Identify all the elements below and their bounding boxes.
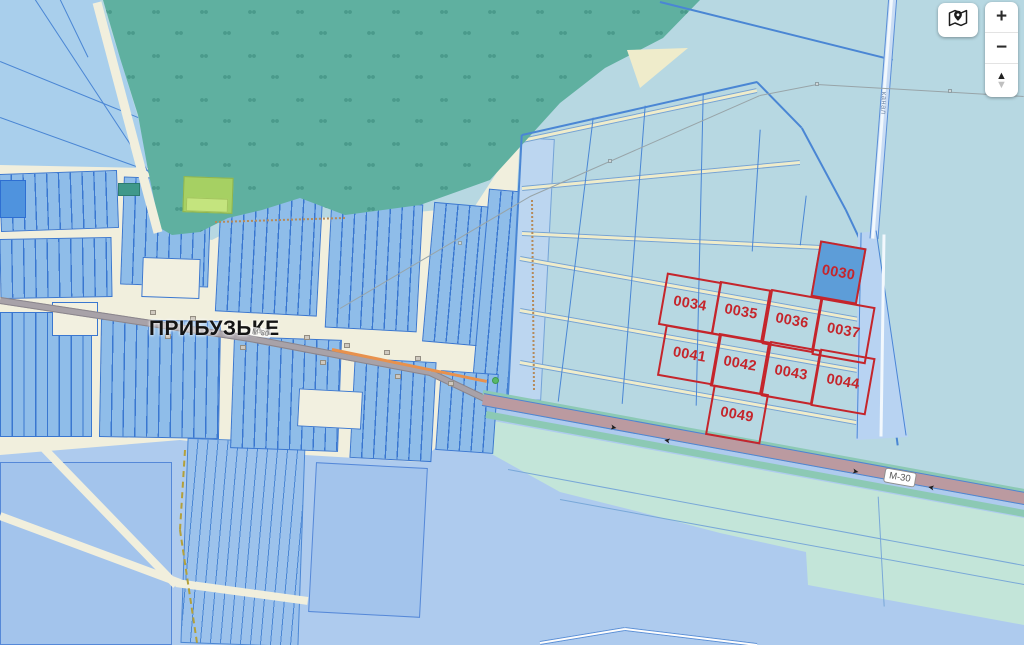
village-block-unfilled xyxy=(141,257,200,299)
parcel-number-label: 0049 xyxy=(719,403,755,425)
water-parcel xyxy=(0,180,26,218)
village-block xyxy=(0,237,113,299)
parcel-0049[interactable]: 0049 xyxy=(705,384,769,444)
zoom-out-button[interactable]: − xyxy=(985,33,1018,63)
garden-strip-block xyxy=(180,438,305,645)
pylon-icon xyxy=(458,241,462,245)
parcel-boundary xyxy=(799,196,806,246)
building xyxy=(240,345,246,350)
parcel-number-label: 0042 xyxy=(722,353,758,375)
village-block-unfilled xyxy=(297,388,363,429)
map-pin-icon xyxy=(946,6,970,35)
map-canvas[interactable]: ➤➤➤➤003000340035003600370041004200430044… xyxy=(0,0,1024,645)
building xyxy=(415,356,421,361)
parcel-number-label: 0043 xyxy=(773,362,809,384)
map-layers-button[interactable] xyxy=(938,3,978,37)
direction-arrow-icon: ➤ xyxy=(609,423,617,432)
building xyxy=(395,374,401,379)
grass-parcel xyxy=(186,197,228,212)
field-strip xyxy=(522,231,822,249)
compass-button[interactable]: ▲ ▼ xyxy=(985,64,1018,97)
building xyxy=(448,381,454,386)
parcel-boundary xyxy=(751,130,760,252)
direction-arrow-icon: ➤ xyxy=(927,482,935,491)
field-strip xyxy=(522,160,800,190)
pylon-icon xyxy=(608,159,612,163)
direction-arrow-icon: ➤ xyxy=(851,467,859,476)
zoom-in-button[interactable]: + xyxy=(985,2,1018,32)
direction-arrow-icon: ➤ xyxy=(663,435,671,444)
compass-down-icon: ▼ xyxy=(996,81,1007,90)
power-line xyxy=(760,84,817,96)
building xyxy=(344,343,350,348)
parcel-number-label: 0035 xyxy=(723,301,759,323)
building xyxy=(304,335,310,340)
canal-name-label: канал xyxy=(879,92,889,115)
parcel-boundary xyxy=(557,118,593,402)
field-boundary xyxy=(660,1,893,60)
zoom-control: + − ▲ ▼ xyxy=(985,2,1018,97)
building xyxy=(320,360,326,365)
canal-waterline xyxy=(872,0,893,238)
parcel-number-label: 0041 xyxy=(671,344,707,366)
parcel-0044[interactable]: 0044 xyxy=(810,349,875,416)
pond-parcel xyxy=(118,183,140,196)
parcel-0030[interactable]: 0030 xyxy=(810,240,866,304)
building xyxy=(384,350,390,355)
parcel-number-label: 0034 xyxy=(672,292,708,314)
parcel-number-label: 0036 xyxy=(774,310,810,332)
parcel-number-label: 0030 xyxy=(820,261,856,283)
parcel-number-label: 0044 xyxy=(825,371,861,393)
field-parcel xyxy=(308,462,428,618)
pylon-icon xyxy=(948,89,952,93)
parcel-number-label: 0037 xyxy=(825,320,861,342)
vegetation-icon xyxy=(492,377,499,384)
building xyxy=(150,310,156,315)
pylon-icon xyxy=(815,82,819,86)
